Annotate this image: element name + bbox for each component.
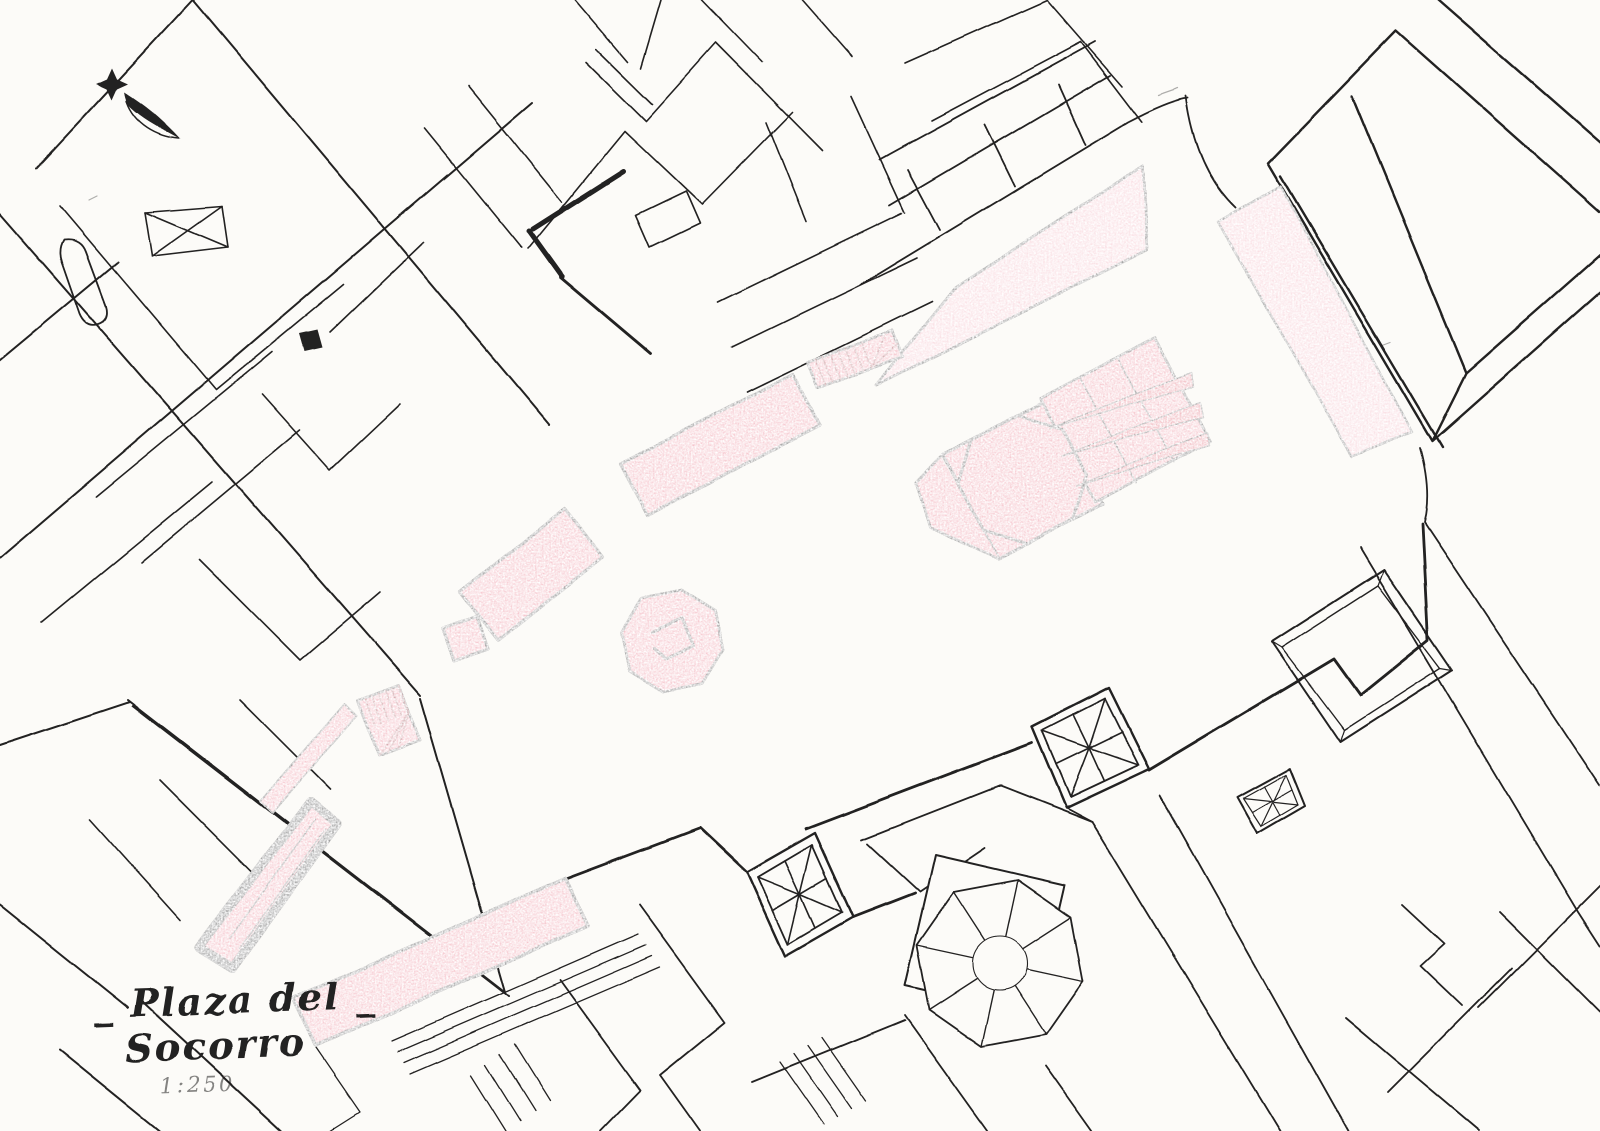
plan-scale-label: 1:250 [160,1071,236,1098]
plan-title-line2: Socorro [125,1020,307,1071]
plaza-kiosk-octagon [621,590,723,692]
plan-sheet: _ Plaza del _ Socorro 1:250 [0,0,1600,1131]
